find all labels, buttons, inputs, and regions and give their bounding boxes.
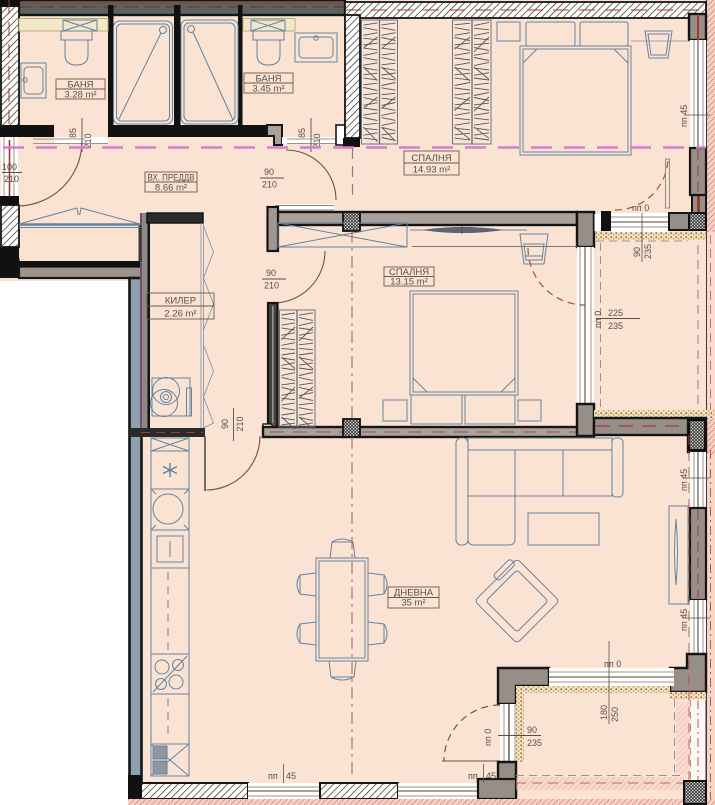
svg-text:35 m²: 35 m²: [401, 598, 425, 609]
svg-text:90: 90: [220, 419, 230, 429]
svg-text:пп 45: пп 45: [679, 609, 689, 631]
svg-text:8.66 m²: 8.66 m²: [155, 183, 187, 194]
svg-text:235: 235: [608, 321, 623, 331]
svg-text:250: 250: [610, 707, 620, 722]
svg-text:225: 225: [608, 308, 623, 318]
svg-text:90: 90: [266, 268, 276, 278]
svg-text:210: 210: [235, 416, 245, 431]
svg-text:45: 45: [486, 771, 496, 781]
svg-text:КИЛЕР: КИЛЕР: [165, 296, 196, 307]
svg-text:пп 45: пп 45: [679, 105, 689, 127]
svg-text:пп 0: пп 0: [593, 311, 603, 328]
svg-text:90: 90: [632, 247, 642, 257]
svg-text:85: 85: [297, 128, 307, 138]
svg-text:45: 45: [286, 771, 296, 781]
svg-text:пп 45: пп 45: [679, 469, 689, 491]
svg-text:90: 90: [264, 167, 274, 177]
svg-text:90: 90: [527, 725, 537, 735]
svg-text:3.28 m²: 3.28 m²: [64, 90, 96, 101]
svg-text:235: 235: [527, 738, 542, 748]
svg-text:85: 85: [68, 128, 78, 138]
svg-text:235: 235: [643, 244, 653, 259]
svg-text:180: 180: [599, 705, 609, 720]
svg-text:пп: пп: [268, 771, 278, 781]
svg-text:пп 0: пп 0: [604, 659, 621, 669]
svg-text:210: 210: [4, 174, 19, 184]
svg-text:2.26 m²: 2.26 m²: [164, 309, 196, 320]
svg-text:СПАЛНЯ: СПАЛНЯ: [411, 153, 451, 164]
svg-text:пп: пп: [468, 771, 478, 781]
svg-text:пп 0: пп 0: [483, 729, 493, 746]
svg-text:пп 0: пп 0: [632, 203, 649, 213]
svg-text:210: 210: [264, 281, 279, 291]
svg-text:100: 100: [2, 162, 17, 172]
svg-text:3.45 m²: 3.45 m²: [252, 84, 284, 95]
svg-text:13.15 m²: 13.15 m²: [390, 277, 428, 288]
svg-text:210: 210: [262, 180, 277, 190]
svg-text:14.93 m²: 14.93 m²: [413, 165, 451, 176]
